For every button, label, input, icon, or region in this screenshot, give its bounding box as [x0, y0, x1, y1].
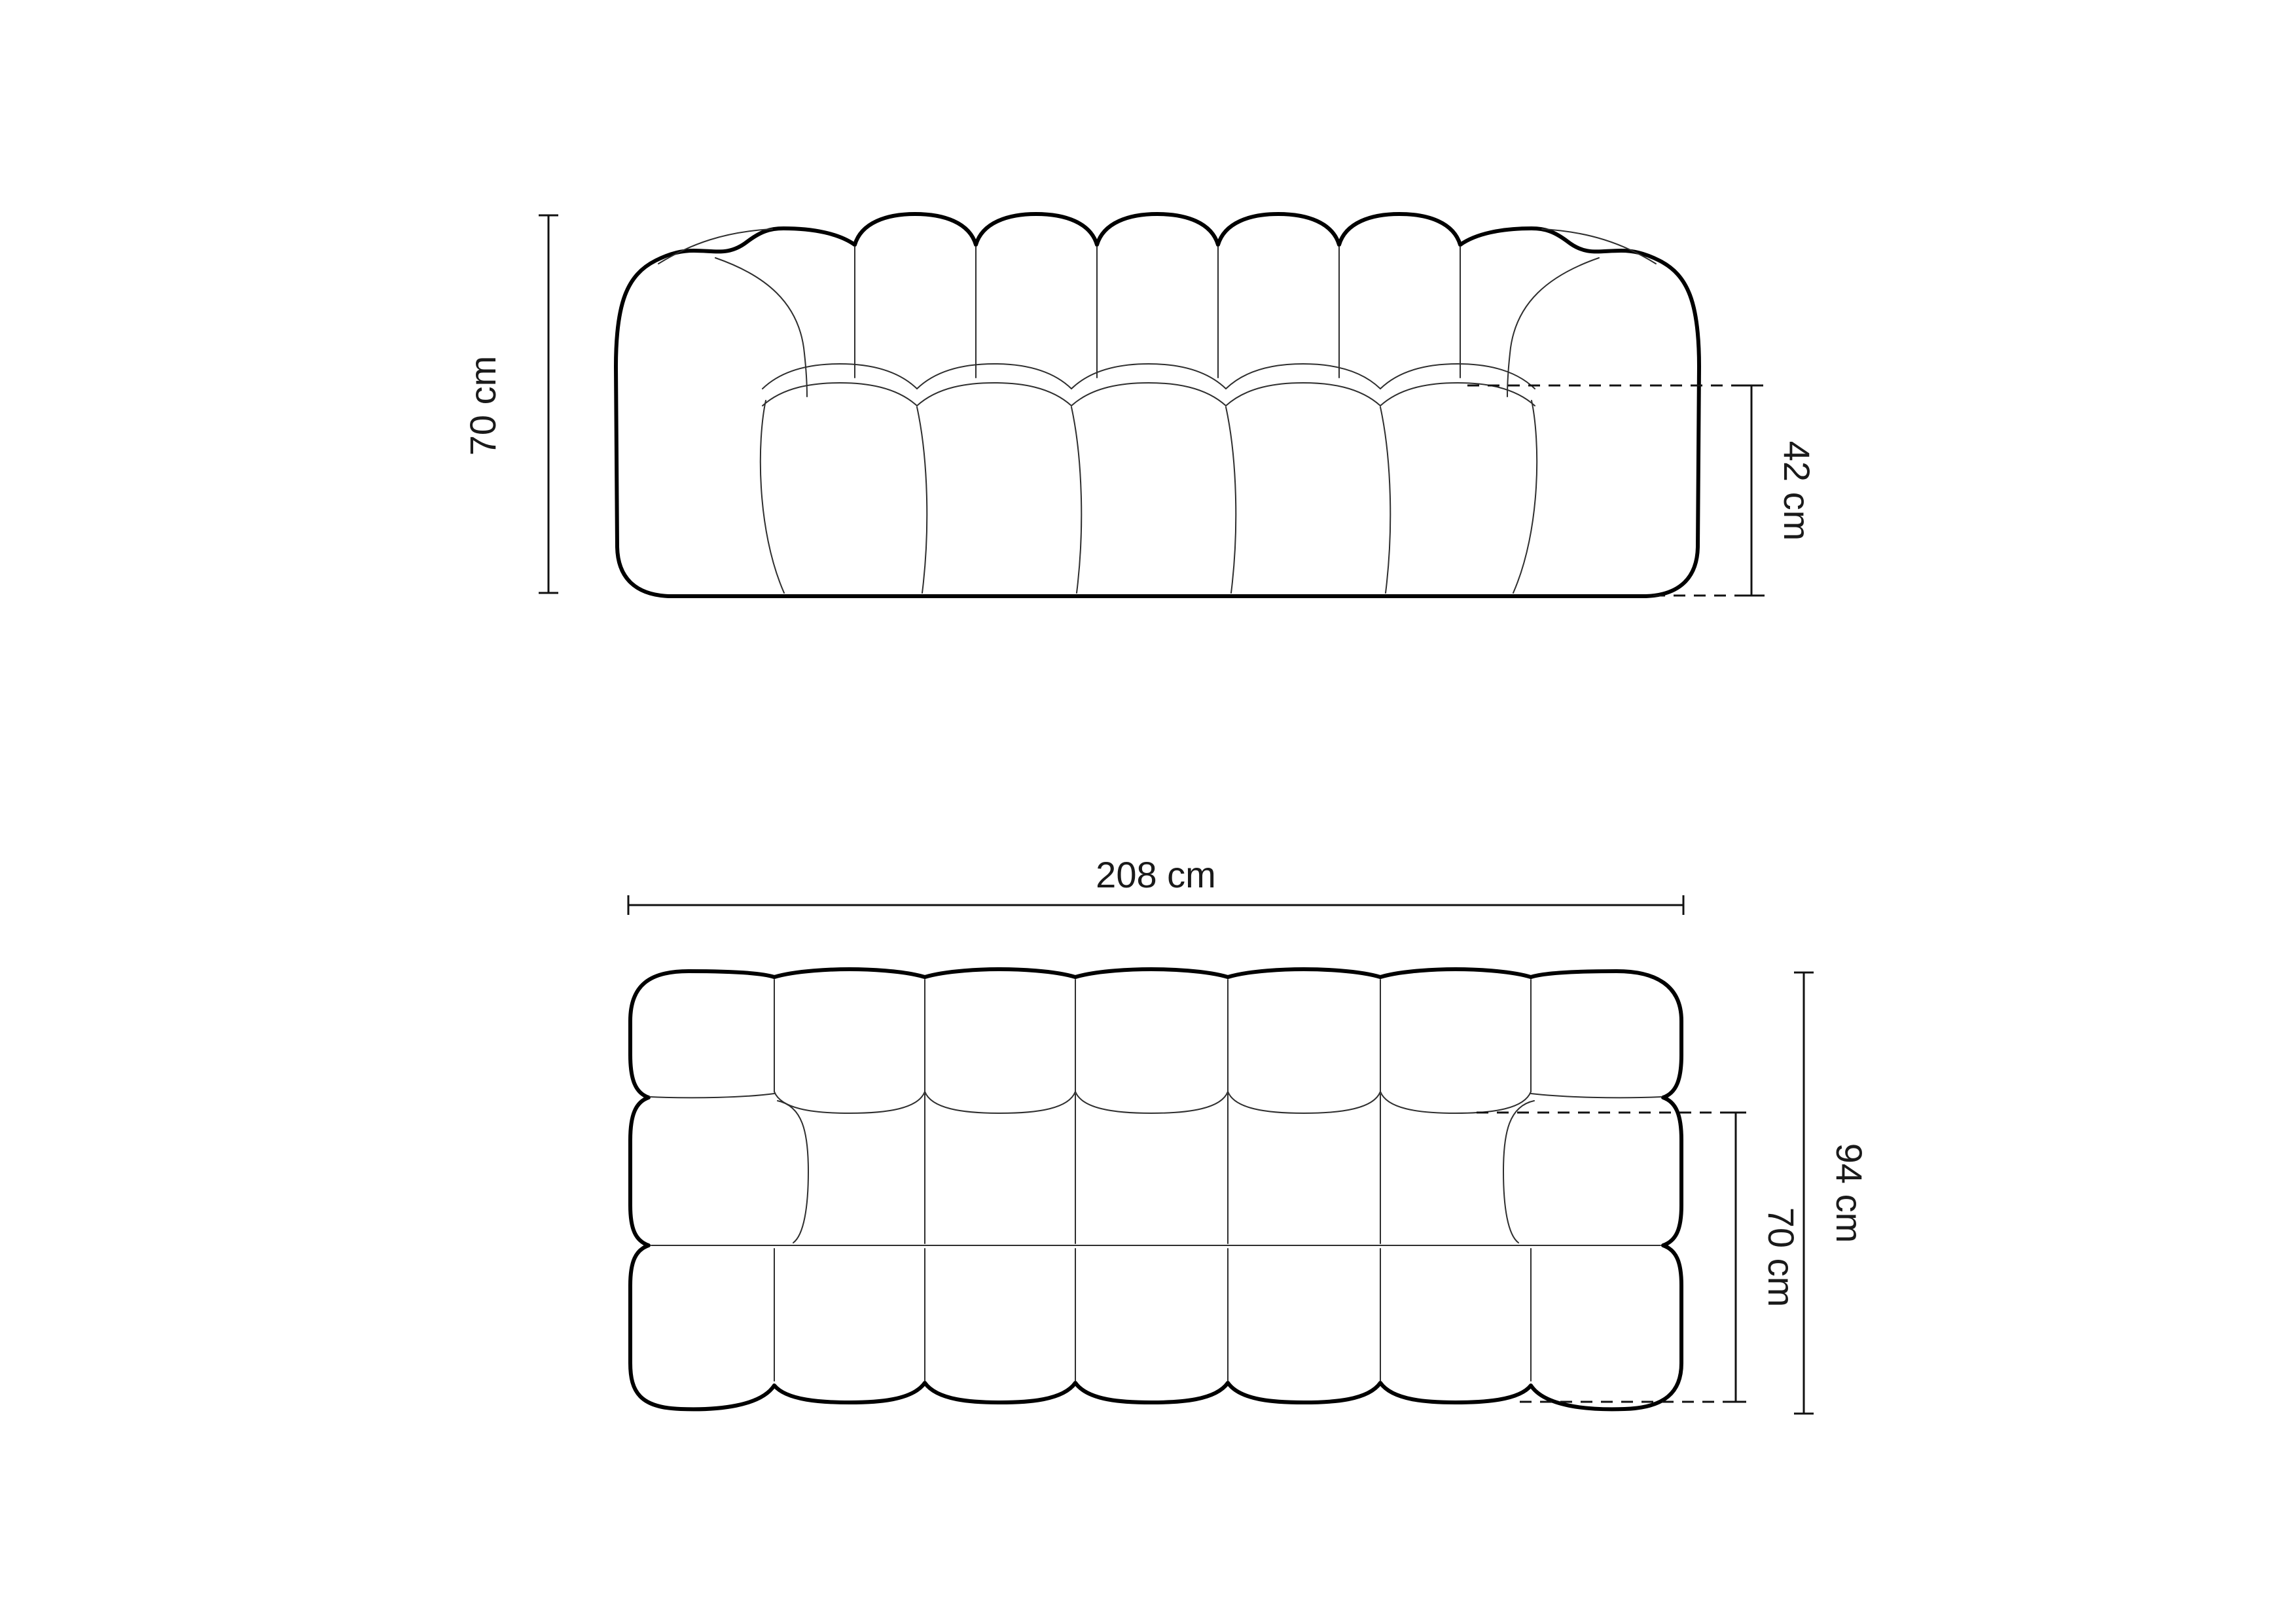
seat-height-dimension-label: 42 cm — [1776, 441, 1818, 541]
depth-dimension-label: 94 cm — [1829, 1143, 1870, 1243]
front-view: 70 cm 42 cm — [462, 214, 1818, 596]
dimension-sheet: 70 cm 42 cm — [0, 0, 2296, 1623]
top-depth-dimension: 94 cm — [1794, 972, 1870, 1414]
top-width-dimension: 208 cm — [628, 854, 1683, 915]
front-silhouette — [616, 214, 1699, 596]
top-perimeter — [630, 969, 1681, 1409]
seat-depth-dimension-label: 70 cm — [1761, 1207, 1802, 1308]
top-view: 208 cm 94 cm 70 cm — [628, 854, 1870, 1414]
sofa-technical-drawing: 70 cm 42 cm — [0, 0, 2296, 1623]
height-dimension-label: 70 cm — [462, 356, 503, 456]
width-dimension-label: 208 cm — [1096, 854, 1216, 895]
front-height-dimension: 70 cm — [462, 215, 558, 593]
